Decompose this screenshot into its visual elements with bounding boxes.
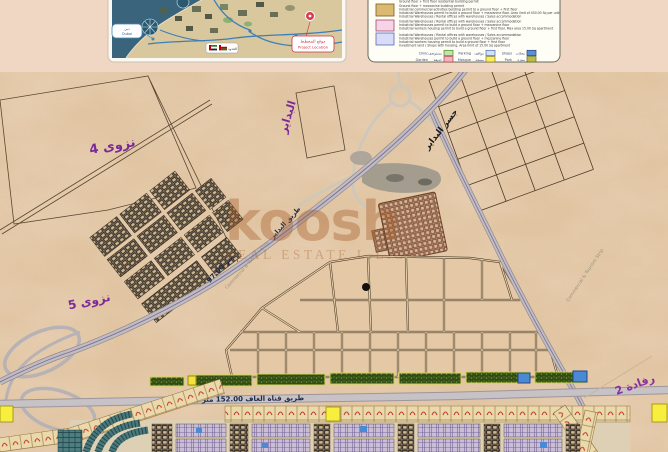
parking-plot xyxy=(573,371,587,382)
border-label-text: الحدود xyxy=(228,47,237,51)
legend-item-park: Park منتزه xyxy=(505,57,536,62)
legend-swatch-warehouses xyxy=(376,20,394,31)
shops-swatch xyxy=(527,50,536,55)
parking-swatch xyxy=(486,50,495,55)
watermark-subtitle: REAL ESTATE L.L.C xyxy=(226,247,407,262)
garden-swatch xyxy=(444,57,453,62)
watermark-logo: koosh xyxy=(225,190,399,253)
legend-swatch-commercial xyxy=(376,4,394,16)
legend-intro-line: Ground floor + first floor residential b… xyxy=(399,0,479,4)
legend: Ground floor + first floor residential b… xyxy=(368,0,560,62)
legend-item-label-en: Park xyxy=(505,58,512,62)
top-strip: موقع المخطط Project Location الحدود xyxy=(0,0,668,72)
legend-item-label-en: Clinic xyxy=(419,52,428,56)
legend-line: Industrial workers housing permit to bui… xyxy=(399,27,554,31)
pin-label-line2: Project Location xyxy=(298,45,329,50)
clinic-swatch xyxy=(444,50,453,55)
callout-line2: Dubai xyxy=(122,32,132,36)
legend-swatch-investment xyxy=(376,33,394,45)
pin-label-line1: موقع المخطط xyxy=(301,39,326,44)
legend-item-garden: Garden حديقة xyxy=(416,57,453,62)
uae-flag-icon xyxy=(209,45,217,50)
border-flags-label: الحدود xyxy=(206,43,238,53)
legend-item-label-ar: حديقة xyxy=(434,58,442,62)
legend-item-label-ar: منتزه xyxy=(517,58,525,62)
legend-item-label-en: Mosque xyxy=(458,58,471,62)
legend-item-clinic: Clinic مستوصف xyxy=(419,50,453,55)
legend-item-label-ar: مسجد xyxy=(475,58,484,62)
legend-item-shops: Shops محلات xyxy=(502,50,536,55)
legend-item-parking: Parking مواقف xyxy=(458,50,495,55)
main-map: نزوى 4 نزوى 5 البداير جسر البداير رفادة … xyxy=(0,38,668,452)
mosque-plot xyxy=(188,376,196,385)
legend-line: Investment land / Shops with housing. Ar… xyxy=(399,44,511,48)
parking-plot xyxy=(518,373,530,383)
gray-blob xyxy=(386,174,404,182)
callout-line1: دبي xyxy=(124,27,130,31)
legend-item-label-ar: مواقف xyxy=(474,52,484,56)
legend-item-mosque: Mosque مسجد xyxy=(458,57,495,62)
legend-item-label-ar: محلات xyxy=(516,52,525,56)
callout-dot xyxy=(152,38,155,41)
legend-item-label-ar: مستوصف xyxy=(428,52,442,56)
inset-map: موقع المخطط Project Location الحدود xyxy=(108,0,346,62)
gray-blob xyxy=(418,179,432,186)
legend-item-label-en: Garden xyxy=(416,58,428,62)
pin-label: موقع المخطط Project Location xyxy=(292,36,334,52)
mosque-swatch xyxy=(486,57,495,62)
masterplan-screenshot: نزوى 4 نزوى 5 البداير جسر البداير رفادة … xyxy=(0,0,668,452)
watermark: koosh REAL ESTATE L.L.C xyxy=(225,190,407,262)
location-dot xyxy=(362,283,370,291)
legend-item-label-en: Parking xyxy=(458,52,471,56)
legend-line: Industrial Warehouses / Rental offices w… xyxy=(399,15,521,19)
oman-flag-icon xyxy=(219,45,227,50)
legend-item-label-en: Shops xyxy=(502,52,513,56)
park-swatch xyxy=(527,57,536,62)
